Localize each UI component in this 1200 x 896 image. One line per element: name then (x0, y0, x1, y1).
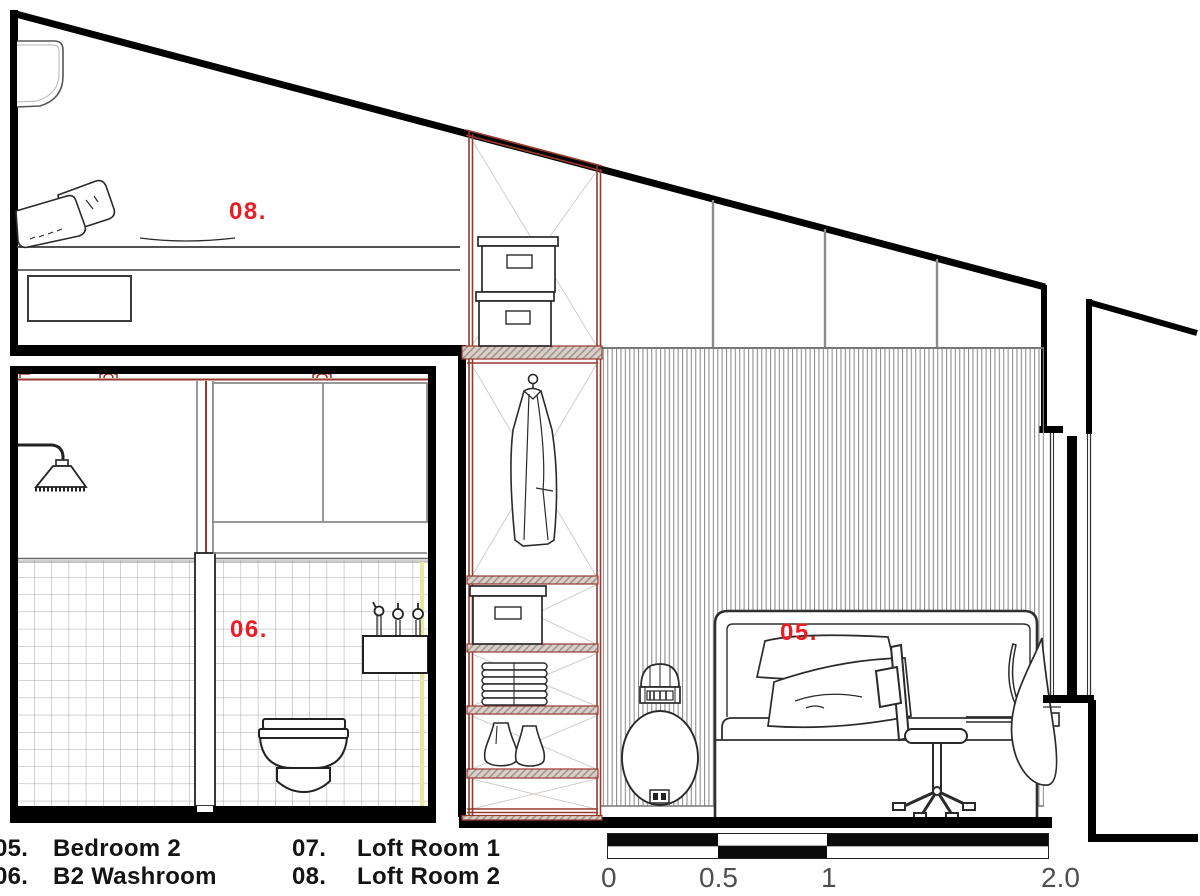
scale-tick-1: 1 (821, 862, 837, 894)
upper-roof-slope (1088, 302, 1197, 333)
exterior-wall (1088, 700, 1198, 842)
ceiling-duct (17, 41, 63, 107)
legend-number-08: 08. (292, 863, 326, 891)
legend-number-07: 07. (292, 835, 326, 863)
window-section (1043, 433, 1094, 707)
bedroom-2-label: 05. (780, 619, 818, 647)
power-outlet (650, 790, 669, 803)
shower-head (14, 445, 87, 490)
legend-name-loft-room-1: Loft Room 1 (357, 835, 500, 863)
washroom-label: 06. (230, 616, 268, 644)
scale-bar (608, 834, 1049, 859)
loft-room-2-label: 08. (229, 198, 267, 226)
legend-name-b2-washroom: B2 Washroom (53, 863, 217, 891)
vases (485, 723, 545, 766)
hanging-coat (511, 375, 557, 547)
built-in-closet (458, 130, 602, 820)
mirror-cabinet (213, 383, 427, 553)
scale-tick-0: 0 (601, 862, 617, 894)
bed-drawer (28, 276, 131, 321)
window-mullion (1067, 436, 1077, 697)
loft-pillows (16, 181, 235, 248)
window-sill (1043, 695, 1094, 703)
legend-name-loft-room-2: Loft Room 2 (357, 863, 500, 891)
legend-number-05: 05. (0, 835, 28, 863)
waterproofing-strip (420, 562, 424, 808)
legend-number-06: 06. (0, 863, 28, 891)
tiled-walls (17, 559, 428, 809)
storage-box-small (470, 586, 546, 644)
loft-left-wall (10, 10, 18, 356)
washroom-right-wall (428, 366, 436, 823)
loft-floor-slab (10, 345, 466, 356)
section-linework (0, 0, 1200, 896)
washroom-floor (10, 806, 436, 823)
scale-tick-2-0: 2.0 (1041, 862, 1080, 894)
b2-washroom (10, 366, 436, 823)
table-lamp (640, 664, 680, 703)
storage-boxes (476, 237, 558, 346)
legend-name-bedroom-2: Bedroom 2 (53, 835, 181, 863)
washroom-left-wall (10, 366, 18, 823)
sink-counter (363, 636, 428, 673)
loft-room-2 (10, 10, 466, 356)
glass-partition (195, 381, 215, 812)
ceiling-panels (601, 200, 1044, 348)
washroom-top-wall (10, 366, 436, 374)
loft-bed (17, 247, 460, 321)
architectural-section-drawing: 08. 06. 05. 05. Bedroom 2 06. B2 Washroo… (0, 0, 1200, 896)
folded-towels (482, 663, 547, 705)
closet-left-wall (458, 350, 466, 817)
scale-tick-0-5: 0.5 (699, 862, 738, 894)
